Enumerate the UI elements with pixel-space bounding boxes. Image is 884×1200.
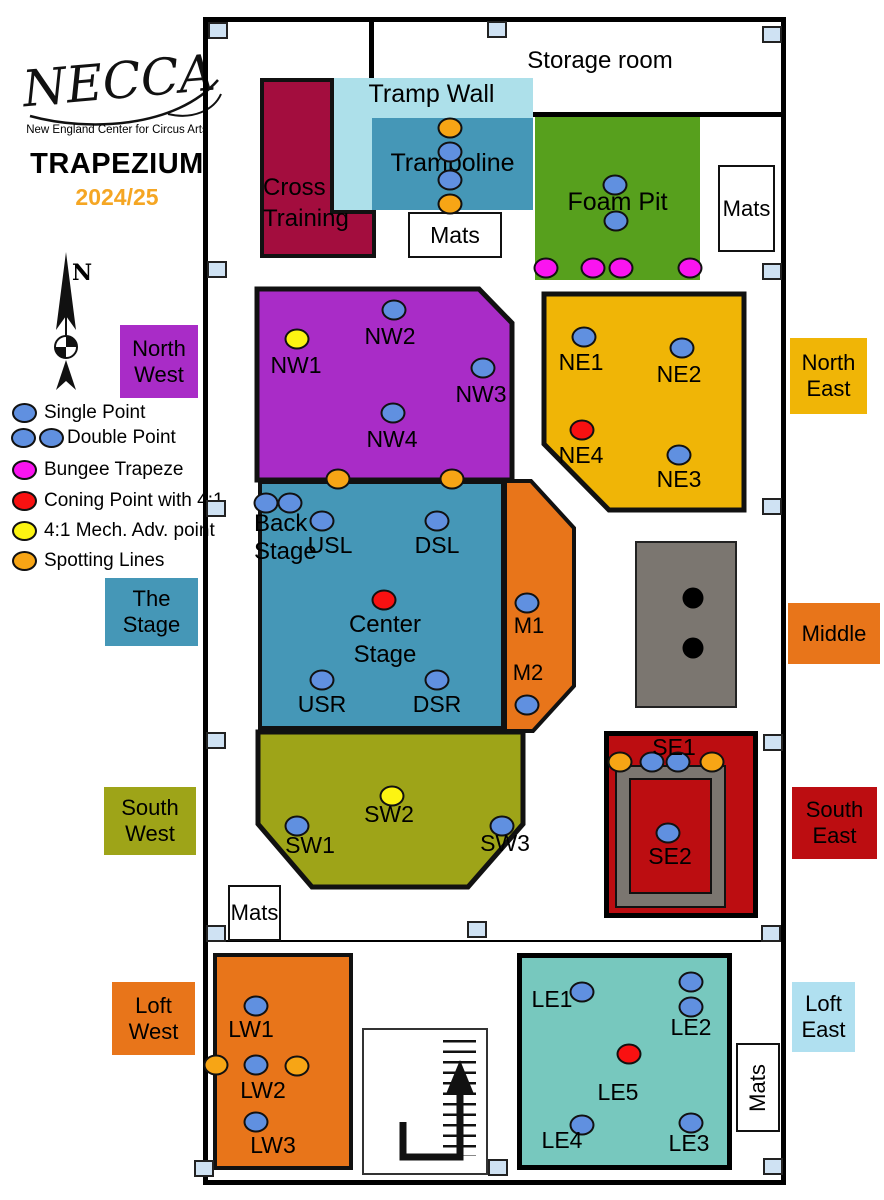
spotting-line-point	[285, 1056, 310, 1077]
gray-block-area	[635, 541, 737, 708]
region-label-loft-west: Loft West	[112, 982, 195, 1055]
single-point	[425, 670, 450, 691]
spotting-line-point	[438, 194, 463, 215]
legend-bungee: Bungee Trapeze	[12, 459, 183, 481]
single-point	[244, 1055, 269, 1076]
pillar	[761, 925, 781, 942]
mats-box-northeast: Mats	[718, 165, 775, 252]
single-point	[425, 511, 450, 532]
spotting-line-point	[700, 752, 725, 773]
single-point	[570, 982, 595, 1003]
point-label-le5: LE5	[598, 1079, 639, 1106]
region-label-the-stage: The Stage	[105, 578, 198, 646]
pillar	[206, 732, 226, 749]
pillar	[487, 21, 507, 38]
trapezium-floor-plan: NECCA New England Center for Circus Arts…	[0, 0, 884, 1200]
mats-box-southwest: Mats	[228, 885, 281, 941]
single-point	[656, 823, 681, 844]
double-point	[604, 211, 629, 232]
point-label-le2: LE2	[671, 1014, 712, 1041]
point-label-lw2: LW2	[240, 1077, 286, 1104]
pillar	[763, 1158, 783, 1175]
single-point	[670, 338, 695, 359]
wall-storage-left	[369, 17, 374, 80]
spotting-line-point	[440, 469, 465, 490]
pillar	[207, 261, 227, 278]
legend-spotting: Spotting Lines	[12, 550, 164, 572]
season-label: 2024/25	[22, 184, 212, 211]
mech-adv-point-icon	[12, 521, 37, 541]
spotting-line-point	[204, 1055, 229, 1076]
point-label-sw3: SW3	[480, 830, 530, 857]
coning-point-icon	[12, 491, 37, 511]
svg-text:NECCA: NECCA	[19, 44, 217, 118]
legend-single-point: Single Point	[12, 402, 145, 424]
bungee-point	[678, 258, 703, 279]
gray-block-point	[683, 588, 704, 609]
pillar	[206, 500, 226, 517]
point-label-se2: SE2	[648, 843, 691, 870]
region-label-middle: Middle	[788, 603, 880, 664]
single-point	[438, 142, 463, 163]
pillar	[762, 263, 782, 280]
point-label-sw2: SW2	[364, 801, 414, 828]
single-point	[438, 170, 463, 191]
bungee-point	[534, 258, 559, 279]
single-point	[667, 445, 692, 466]
single-point	[244, 996, 269, 1017]
storage-room-label: Storage room	[500, 47, 700, 75]
single-point	[244, 1112, 269, 1133]
single-point	[471, 358, 496, 379]
double-point-icon	[11, 428, 36, 448]
point-label-nw1: NW1	[270, 352, 321, 379]
legend-double-point: Double Point	[11, 427, 176, 449]
pillar	[762, 498, 782, 515]
logo-tagline: New England Center for Circus Arts	[22, 124, 212, 136]
point-label-le1: LE1	[532, 986, 573, 1013]
region-label-loft-east: Loft East	[792, 982, 855, 1052]
point-label-m2: M2	[513, 660, 544, 686]
coning-point	[617, 1044, 642, 1065]
single-point-icon	[12, 403, 37, 423]
compass-north-label: N	[72, 260, 92, 286]
single-point	[515, 695, 540, 716]
coning-point	[570, 420, 595, 441]
single-point	[381, 403, 406, 424]
point-label-m1: M1	[514, 613, 545, 639]
region-label-south-east: South East	[792, 787, 877, 859]
region-label-north-east: North East	[790, 338, 867, 414]
point-label-dsl: DSL	[415, 532, 460, 559]
pillar	[488, 1159, 508, 1176]
center-stage-label: Center Stage	[345, 610, 425, 670]
legend-mech-adv: 4:1 Mech. Adv. point	[12, 520, 215, 542]
single-point	[382, 300, 407, 321]
spotting-line-point	[608, 752, 633, 773]
spotting-point-icon	[12, 551, 37, 571]
necca-logo: NECCA	[18, 44, 233, 134]
pillar	[194, 1160, 214, 1177]
point-label-le4: LE4	[542, 1127, 583, 1154]
gray-block-point	[683, 638, 704, 659]
single-point	[515, 593, 540, 614]
point-label-sw1: SW1	[285, 832, 335, 859]
region-label-south-west: South West	[104, 787, 196, 855]
point-label-nw3: NW3	[455, 381, 506, 408]
mech-adv-point	[285, 329, 310, 350]
point-label-ne1: NE1	[559, 349, 604, 376]
point-label-le3: LE3	[669, 1130, 710, 1157]
double-point-icon	[39, 428, 64, 448]
mats-box-trampoline: Mats	[408, 212, 502, 258]
point-label-dsr: DSR	[413, 691, 462, 718]
pillar	[208, 22, 228, 39]
double-point	[679, 972, 704, 993]
page-title: TRAPEZIUM	[22, 148, 212, 181]
bungee-point-icon	[12, 460, 37, 480]
single-point	[310, 670, 335, 691]
single-point	[572, 327, 597, 348]
point-label-ne3: NE3	[657, 466, 702, 493]
double-point	[603, 175, 628, 196]
point-label-lw1: LW1	[228, 1016, 274, 1043]
pillar	[763, 734, 783, 751]
bungee-point	[609, 258, 634, 279]
point-label-nw4: NW4	[366, 426, 417, 453]
point-label-lw3: LW3	[250, 1132, 296, 1159]
mats-box-loft-east: Mats	[736, 1043, 780, 1132]
point-label-nw2: NW2	[364, 323, 415, 350]
coning-point	[372, 590, 397, 611]
pillar	[206, 925, 226, 942]
point-label-ne2: NE2	[657, 361, 702, 388]
pillar	[467, 921, 487, 938]
cross-training-label: Cross Training	[263, 172, 349, 234]
point-label-usl: USL	[308, 532, 353, 559]
pillar	[762, 26, 782, 43]
spotting-line-point	[326, 469, 351, 490]
point-label-se1: SE1	[652, 734, 695, 761]
point-label-ne4: NE4	[559, 442, 604, 469]
spotting-line-point	[438, 118, 463, 139]
region-label-north-west: North West	[120, 325, 198, 398]
stairs-up-arrow-icon	[362, 1028, 488, 1175]
legend-coning: Coning Point with 4:1	[12, 490, 224, 512]
bungee-point	[581, 258, 606, 279]
wall-loft-divider	[205, 940, 784, 942]
point-label-usr: USR	[298, 691, 347, 718]
